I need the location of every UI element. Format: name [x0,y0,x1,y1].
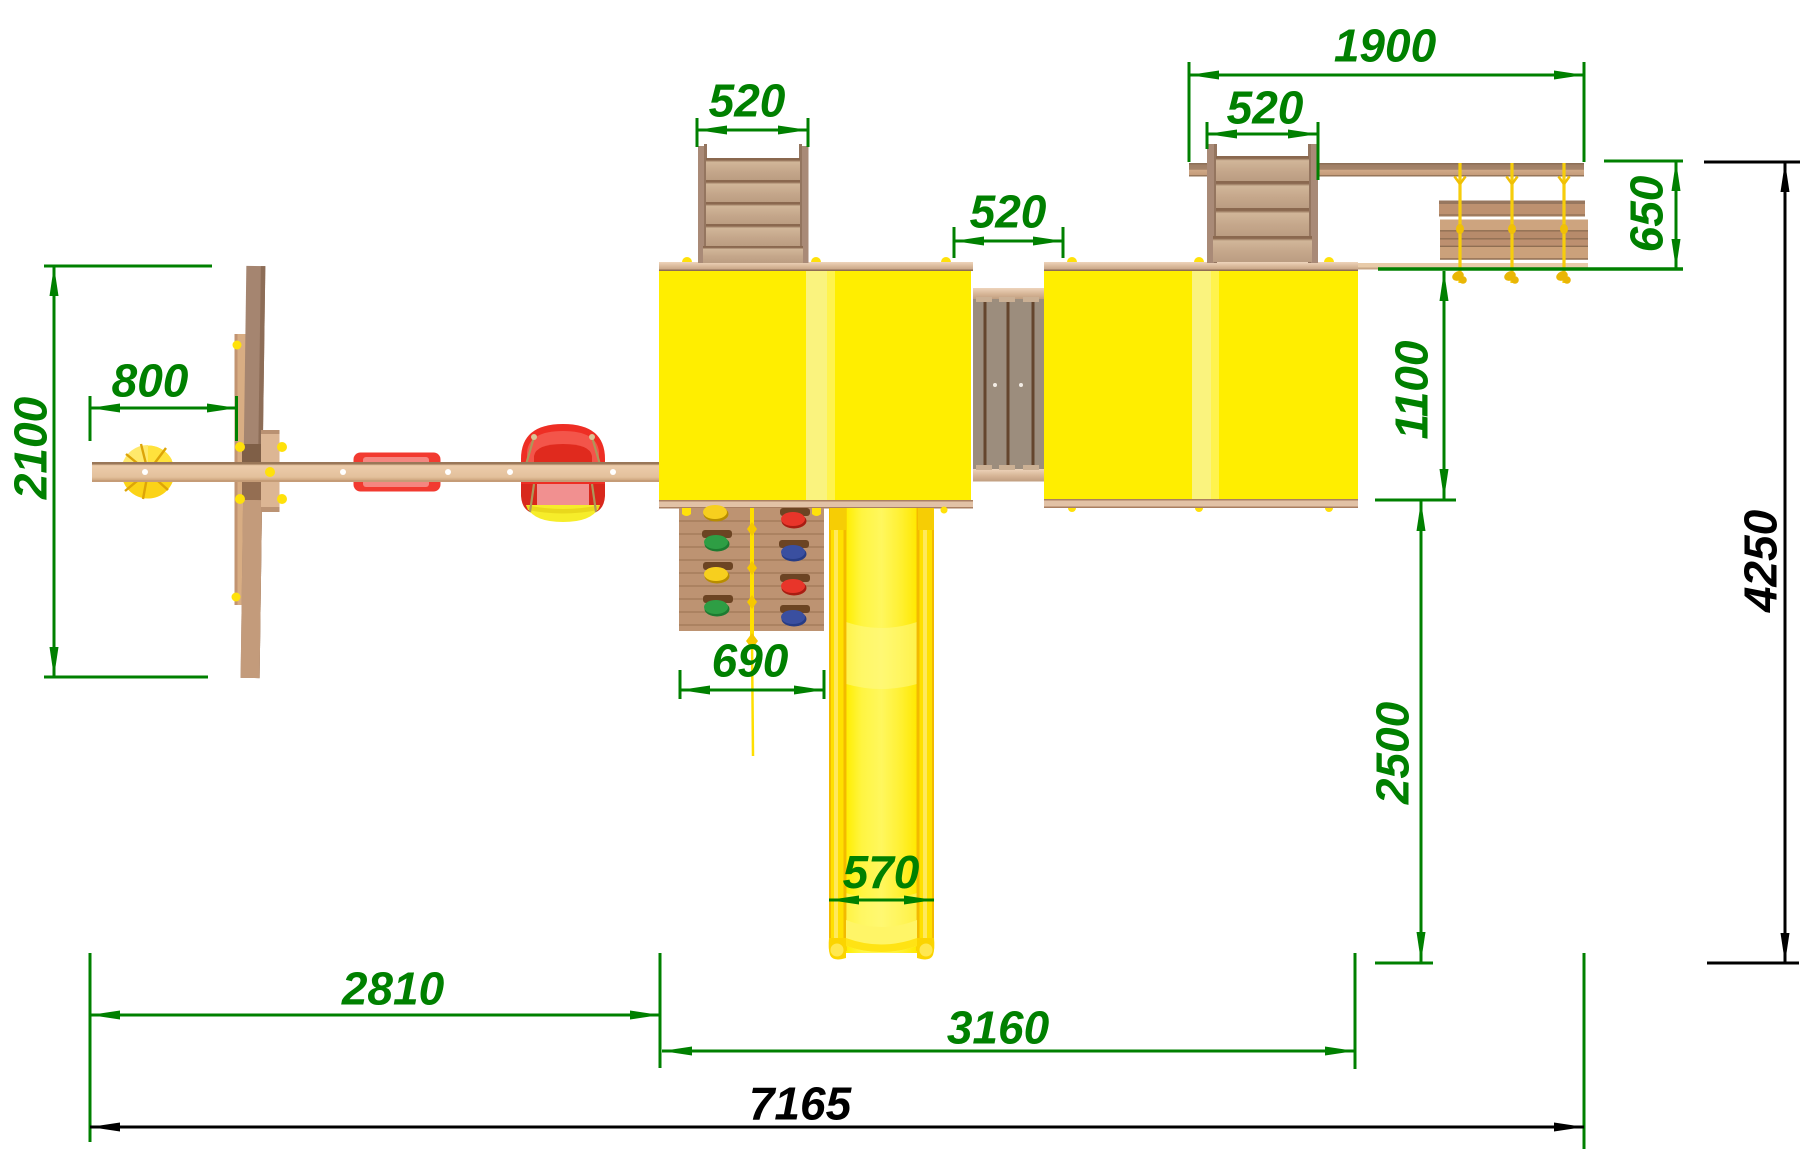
svg-text:520: 520 [709,75,786,127]
svg-text:1900: 1900 [1334,20,1437,72]
svg-text:2100: 2100 [5,396,57,500]
svg-text:2500: 2500 [1367,701,1419,805]
svg-text:520: 520 [1227,82,1304,134]
svg-text:2810: 2810 [341,963,445,1015]
svg-text:690: 690 [712,635,789,687]
svg-text:800: 800 [112,355,189,407]
svg-text:520: 520 [970,186,1047,238]
svg-text:1100: 1100 [1386,340,1438,439]
svg-text:650: 650 [1621,175,1673,252]
svg-text:4250: 4250 [1735,509,1787,613]
svg-text:570: 570 [843,846,920,898]
svg-text:3160: 3160 [947,1002,1050,1054]
svg-text:7165: 7165 [749,1078,853,1130]
